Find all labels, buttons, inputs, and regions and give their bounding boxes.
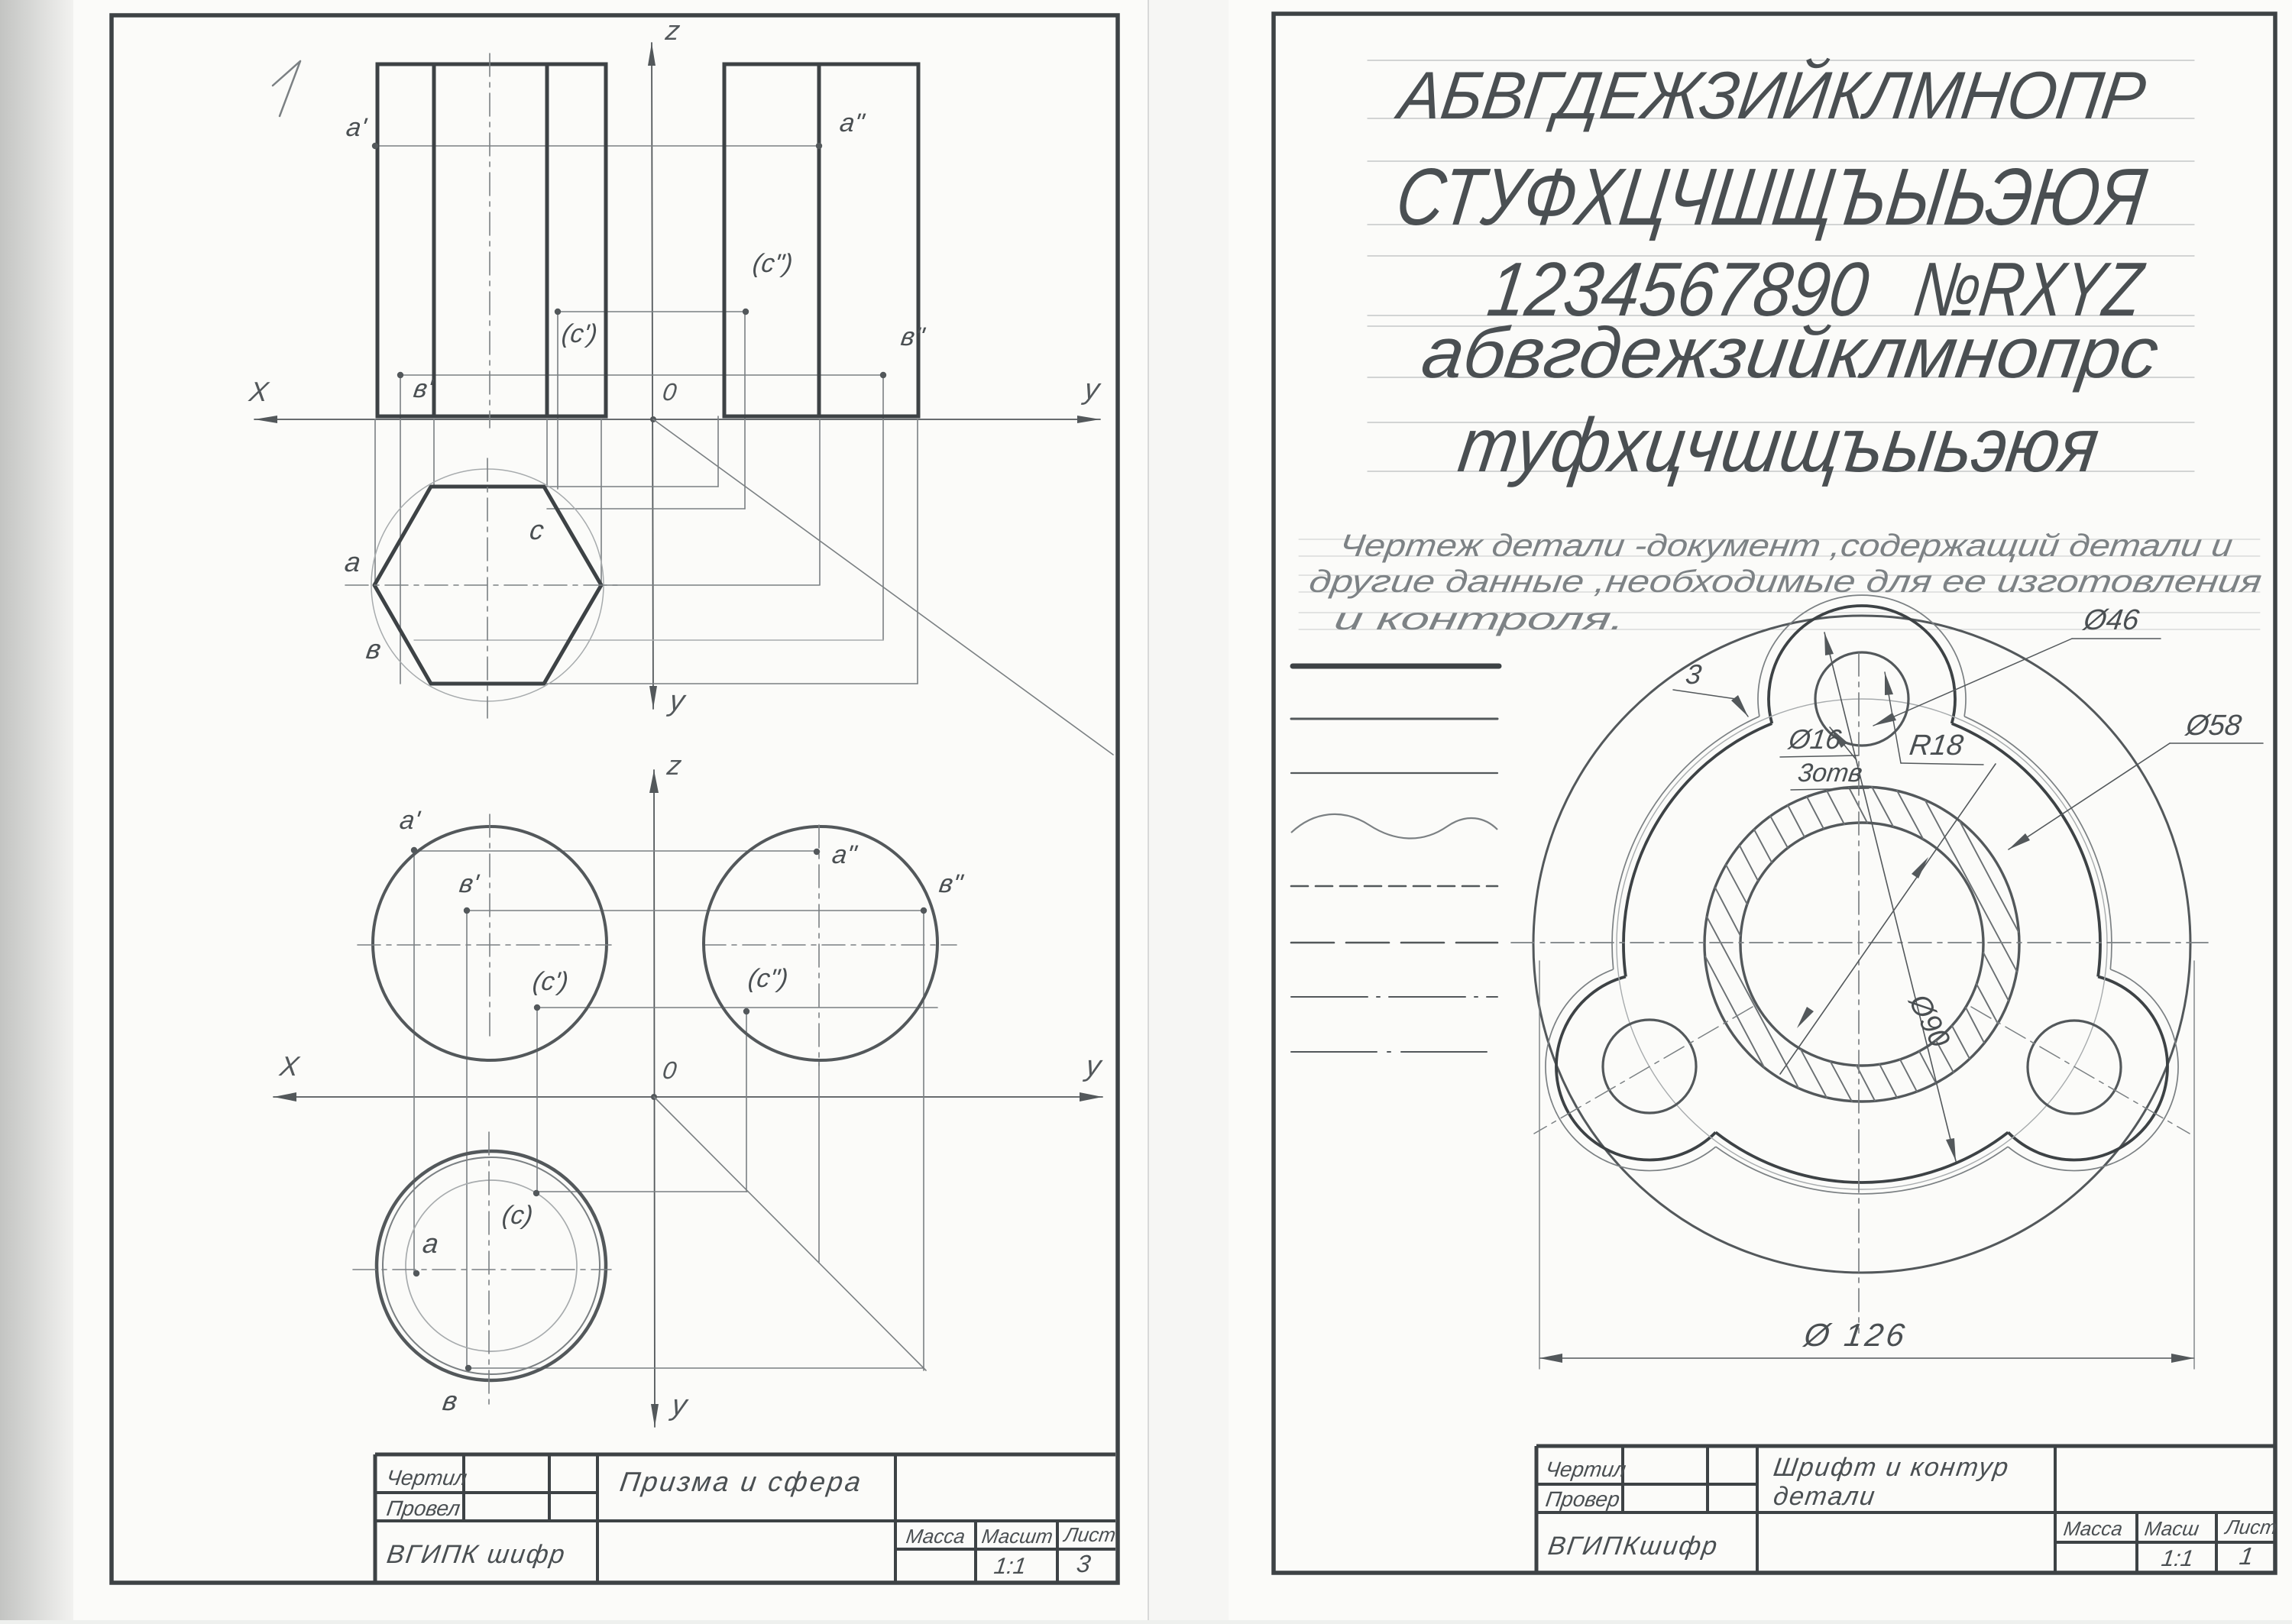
- svg-text:СТУФХЦЧШЩЪЫЬЭЮЯ: СТУФХЦЧШЩЪЫЬЭЮЯ: [1391, 151, 2151, 241]
- svg-text:Чертил: Чертил: [1544, 1457, 1627, 1481]
- svg-text:Масшт: Масшт: [980, 1525, 1054, 1548]
- svg-text:1:1: 1:1: [2160, 1546, 2195, 1571]
- svg-text:Лист: Лист: [1061, 1523, 1117, 1546]
- svg-text:(c'): (c'): [531, 967, 570, 996]
- svg-text:и контроля.: и контроля.: [1332, 601, 1627, 636]
- svg-text:(c"): (c"): [751, 249, 795, 278]
- svg-text:Чертил: Чертил: [385, 1466, 468, 1490]
- svg-text:ВГИПК шифр: ВГИПК шифр: [385, 1540, 568, 1569]
- svg-text:Ø46: Ø46: [2080, 603, 2142, 636]
- svg-text:другие данные ,необходимые для: другие данные ,необходимые для ее изгото…: [1307, 564, 2264, 599]
- svg-text:Шрифт и контур: Шрифт и контур: [1772, 1453, 2012, 1482]
- svg-text:Ø16: Ø16: [1786, 723, 1844, 755]
- svg-text:Масш: Масш: [2143, 1517, 2200, 1540]
- svg-text:детали: детали: [1772, 1482, 1878, 1511]
- svg-text:абвгдежзийклмнопрс: абвгдежзийклмнопрс: [1417, 312, 2164, 393]
- svg-text:Призма и сфера: Призма и сфера: [618, 1466, 865, 1497]
- svg-text:ВГИПКшифр: ВГИПКшифр: [1546, 1532, 1721, 1561]
- svg-text:R18: R18: [1908, 729, 1966, 762]
- svg-text:Лист: Лист: [2222, 1516, 2278, 1538]
- svg-text:Ø 126: Ø 126: [1801, 1317, 1910, 1353]
- svg-text:1:1: 1:1: [992, 1554, 1028, 1579]
- svg-text:Провер: Провер: [1544, 1487, 1621, 1511]
- svg-text:(c): (c): [500, 1201, 535, 1230]
- svg-text:Ø58: Ø58: [2183, 709, 2244, 742]
- svg-text:АБВГДЕЖЗИЙКЛМНОПР: АБВГДЕЖЗИЙКЛМНОПР: [1391, 57, 2151, 133]
- svg-text:туфхцчшщъыьэюя: туфхцчшщъыьэюя: [1454, 403, 2104, 487]
- svg-text:(c'): (c'): [560, 319, 599, 348]
- svg-text:Чертеж детали -документ ,содер: Чертеж детали -документ ,содержащий дета…: [1338, 528, 2235, 563]
- svg-text:Масса: Масса: [905, 1525, 966, 1548]
- svg-text:3отв: 3отв: [1796, 759, 1864, 788]
- svg-text:Масса: Масса: [2062, 1517, 2124, 1540]
- svg-text:(c"): (c"): [746, 964, 790, 993]
- svg-text:Провел: Провел: [385, 1496, 461, 1520]
